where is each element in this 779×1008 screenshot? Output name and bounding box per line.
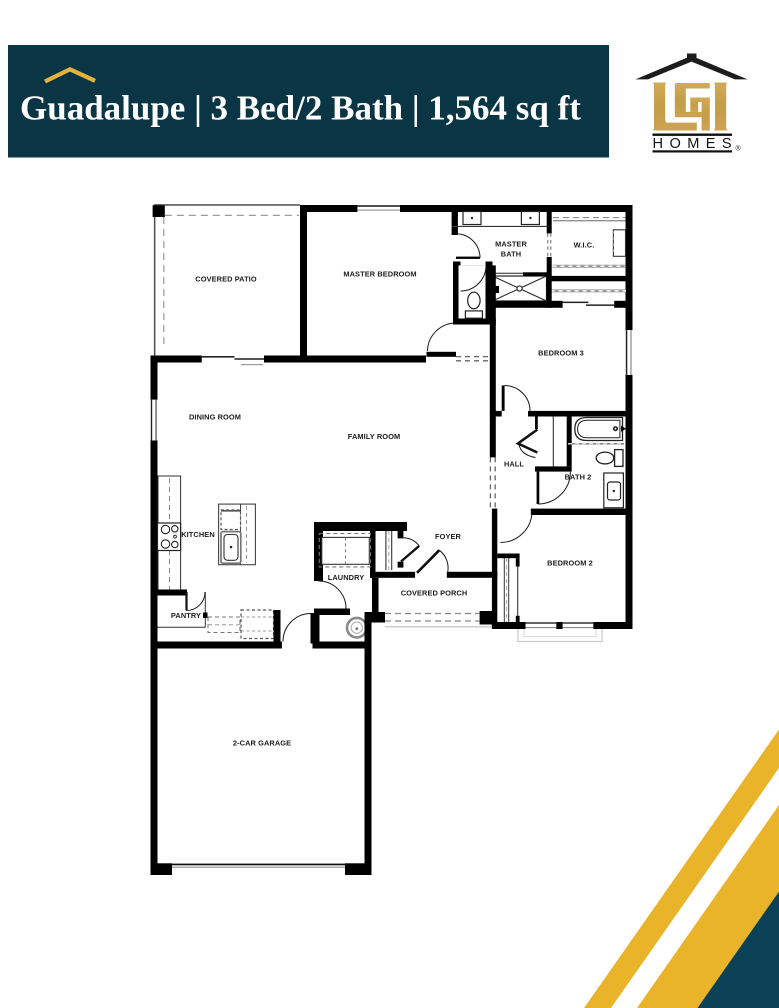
- svg-text:Guadalupe | 3 Bed/2 Bath | 1,5: Guadalupe | 3 Bed/2 Bath | 1,564 sq ft: [20, 89, 581, 128]
- svg-text:BATH: BATH: [501, 250, 521, 259]
- svg-text:MASTER BEDROOM: MASTER BEDROOM: [343, 270, 416, 279]
- svg-text:BEDROOM 2: BEDROOM 2: [547, 559, 593, 568]
- svg-text:DINING ROOM: DINING ROOM: [189, 413, 241, 422]
- svg-text:MASTER: MASTER: [495, 240, 527, 249]
- svg-text:COVERED PORCH: COVERED PORCH: [401, 589, 468, 598]
- svg-text:W.I.C.: W.I.C.: [574, 241, 595, 250]
- svg-text:BEDROOM 3: BEDROOM 3: [538, 349, 584, 358]
- svg-text:2-CAR GARAGE: 2-CAR GARAGE: [233, 739, 291, 748]
- svg-text:PANTRY: PANTRY: [171, 611, 201, 620]
- svg-text:®: ®: [736, 145, 742, 153]
- svg-text:FOYER: FOYER: [435, 532, 462, 541]
- svg-text:FAMILY ROOM: FAMILY ROOM: [348, 432, 400, 441]
- svg-text:LAUNDRY: LAUNDRY: [328, 573, 365, 582]
- svg-text:HALL: HALL: [504, 460, 524, 469]
- svg-text:COVERED PATIO: COVERED PATIO: [195, 275, 257, 284]
- svg-text:KITCHEN: KITCHEN: [181, 530, 215, 539]
- svg-text:BATH 2: BATH 2: [565, 473, 592, 482]
- svg-text:HOMES: HOMES: [653, 136, 739, 152]
